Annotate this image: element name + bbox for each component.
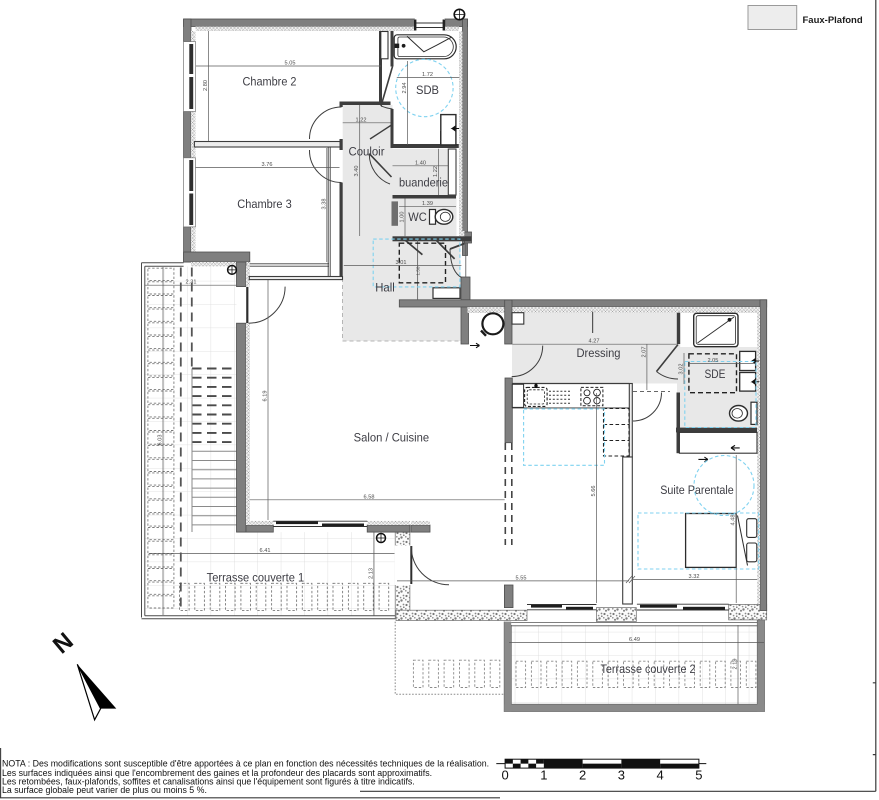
svg-text:Couloir: Couloir <box>349 144 385 158</box>
svg-text:3.02: 3.02 <box>679 364 685 375</box>
svg-text:3.76: 3.76 <box>262 162 273 168</box>
svg-text:4: 4 <box>656 768 663 783</box>
svg-text:2.13: 2.13 <box>368 568 374 579</box>
svg-text:5.66: 5.66 <box>591 486 597 497</box>
svg-text:2.80: 2.80 <box>203 80 209 91</box>
svg-text:6.03: 6.03 <box>158 435 164 446</box>
svg-text:2.94: 2.94 <box>402 83 408 94</box>
svg-text:4.27: 4.27 <box>589 339 600 345</box>
svg-text:3.01: 3.01 <box>396 260 407 266</box>
svg-text:Dressing: Dressing <box>577 346 621 360</box>
svg-text:1.22: 1.22 <box>356 117 367 123</box>
svg-text:4.48: 4.48 <box>731 515 737 526</box>
svg-text:2: 2 <box>579 768 586 783</box>
svg-text:buanderie: buanderie <box>399 176 448 190</box>
svg-text:1.00: 1.00 <box>400 212 406 223</box>
svg-text:1.40: 1.40 <box>415 160 426 166</box>
svg-text:0: 0 <box>501 768 508 783</box>
svg-text:SDE: SDE <box>705 367 726 381</box>
svg-text:1.50: 1.50 <box>416 266 421 275</box>
svg-text:5.05: 5.05 <box>285 61 296 67</box>
svg-text:3.40: 3.40 <box>354 166 360 177</box>
svg-text:Suite Parentale: Suite Parentale <box>660 483 734 497</box>
svg-text:3: 3 <box>618 768 625 783</box>
svg-text:Faux-Plafond: Faux-Plafond <box>803 15 863 26</box>
svg-text:5: 5 <box>695 768 702 783</box>
svg-text:2.05: 2.05 <box>707 358 718 364</box>
svg-text:Chambre 2: Chambre 2 <box>243 74 297 88</box>
svg-text:1.39: 1.39 <box>422 201 433 207</box>
svg-text:1.72: 1.72 <box>422 72 433 78</box>
svg-text:WC: WC <box>408 210 427 224</box>
svg-text:5.55: 5.55 <box>516 575 527 581</box>
svg-text:NOTA : Des modifications sont: NOTA : Des modifications sont susceptibl… <box>2 758 489 768</box>
svg-text:La surface globale peut varier: La surface globale peut varier de plus o… <box>2 785 207 795</box>
svg-text:3.38: 3.38 <box>321 199 327 210</box>
svg-text:Salon / Cuisine: Salon / Cuisine <box>354 431 430 445</box>
svg-text:Hall: Hall <box>375 280 395 294</box>
svg-text:1: 1 <box>540 768 547 783</box>
svg-text:SDB: SDB <box>416 83 439 97</box>
svg-text:2.07: 2.07 <box>641 347 647 358</box>
svg-text:6.58: 6.58 <box>364 494 375 500</box>
svg-text:Chambre 3: Chambre 3 <box>237 197 292 211</box>
svg-text:2.19: 2.19 <box>733 659 739 670</box>
svg-text:6.19: 6.19 <box>263 391 269 402</box>
svg-text:Terrasse couverte 2: Terrasse couverte 2 <box>601 662 696 676</box>
svg-text:3.32: 3.32 <box>689 574 700 580</box>
svg-text:6.49: 6.49 <box>629 637 640 643</box>
svg-text:6.41: 6.41 <box>260 548 271 554</box>
svg-text:Terrasse couverte 1: Terrasse couverte 1 <box>207 571 305 585</box>
svg-text:2.31: 2.31 <box>186 280 197 286</box>
